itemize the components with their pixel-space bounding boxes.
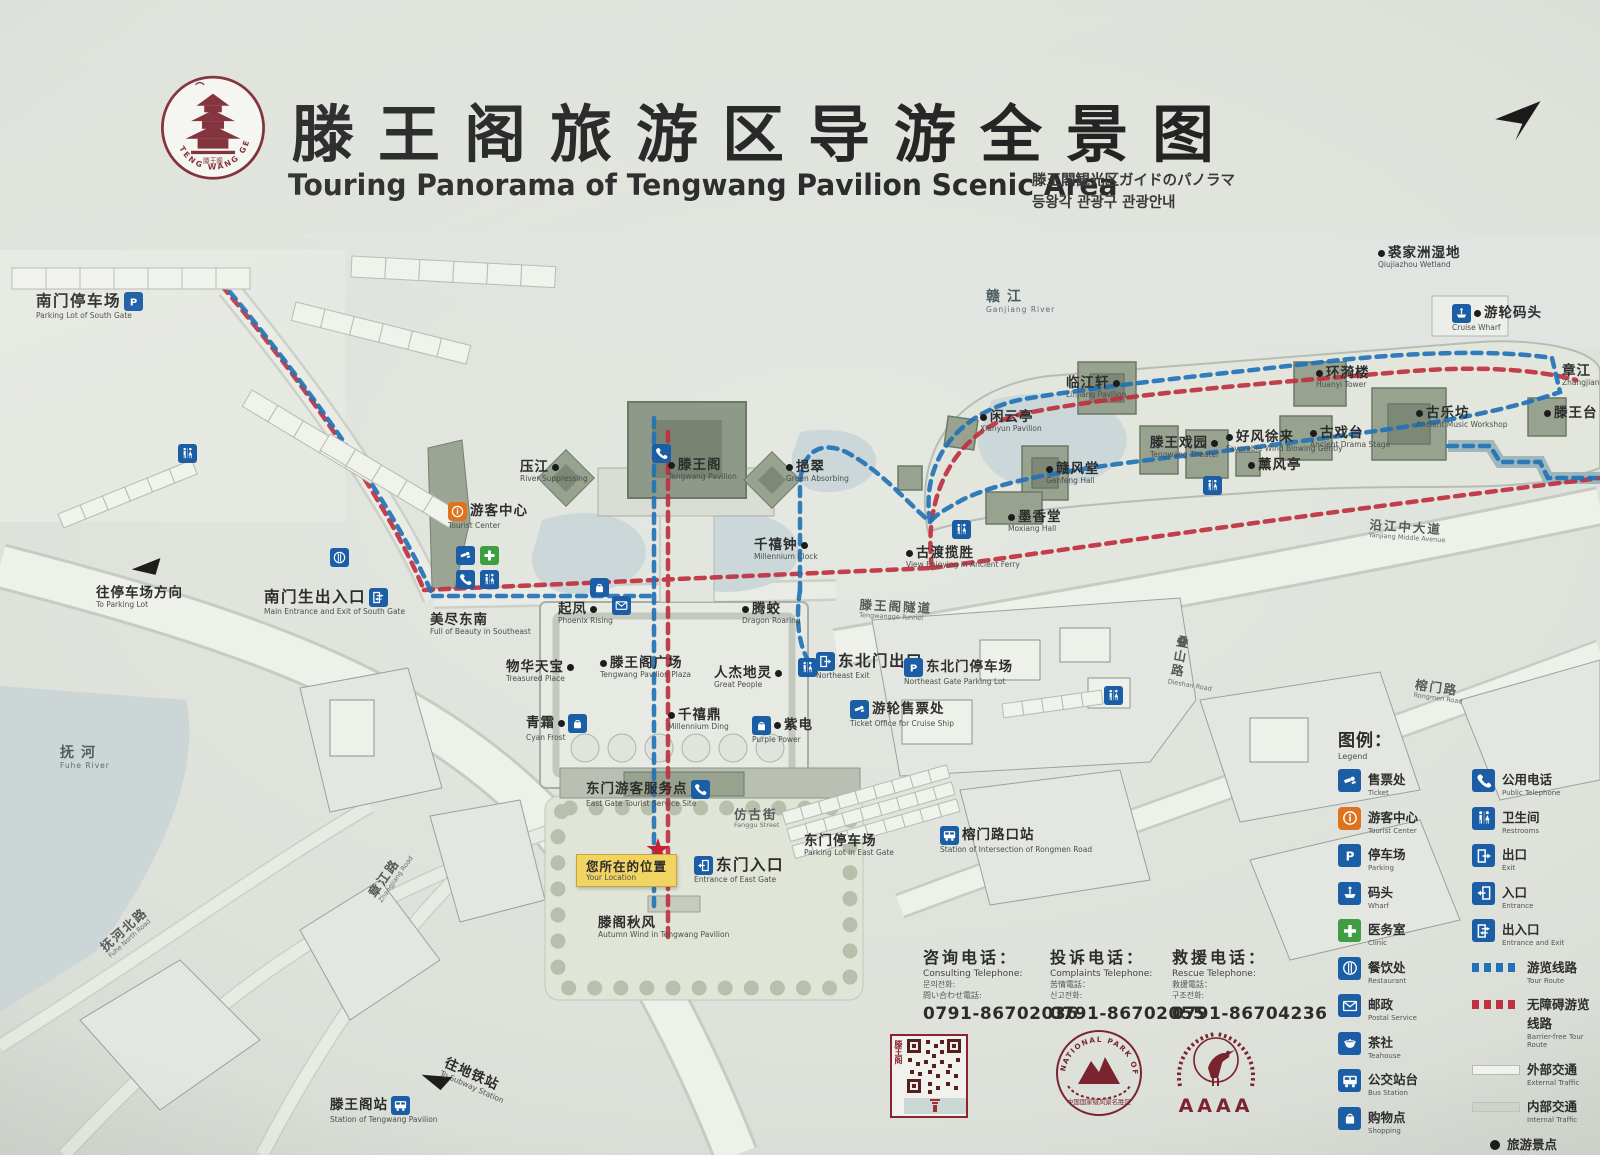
attraction-dot [1416,410,1423,417]
restroom-icon [178,444,197,463]
facility-restroom [178,444,197,465]
legend-item: 邮政Postal Service [1338,994,1462,1022]
ticket-icon [1338,769,1361,792]
poi-tengwang-theater: 滕王戏园Tengwang Theater [1150,436,1219,459]
wharf-icon [1338,882,1361,905]
poi-dieshan-road: 叠山路Dieshan Road [1167,634,1220,692]
poi-great-people: 人杰地灵Great People [714,666,782,689]
attraction-dot [590,606,597,613]
legend-item: 出口Exit [1472,844,1596,872]
facility-mail [612,596,631,617]
attraction-dot [906,550,913,557]
page-title-japanese: 滕王閣観光区ガイドのパノラマ [1032,170,1235,192]
legend-item: 游客中心Tourist Center [1338,807,1462,835]
legend-item: 医务室Clinic [1338,919,1462,947]
legend-item: 售票处Ticket [1338,769,1462,797]
attraction-dot [567,664,574,671]
poi-river-suppressing: 压江River Suppressing [520,460,588,483]
poi-ganfeng-hall: 赣风堂Ganfeng Hall [1046,462,1100,485]
legend-item: 茶社Teahouse [1338,1032,1462,1060]
qr-caption: 滕王阁 [892,1036,904,1116]
legend-item: 内部交通Internal Traffic [1472,1096,1596,1124]
shopping-icon [590,578,609,597]
restroom-icon [952,520,971,539]
legend-item: 停车场Parking [1338,844,1462,872]
direction-arrow-icon [131,558,163,578]
poi-tengwang-pavilion-plaza: 滕王阁广场Tengwang Pavilion Plaza [600,656,691,679]
inout-icon [1472,919,1495,942]
poi-green-absorbing: 挹翠Green Absorbing [786,460,849,483]
poi-millennium-ding: 千禧鼎Millennium Ding [668,708,729,731]
teahouse-icon [1338,1032,1361,1055]
wharf-icon [1452,304,1471,323]
attraction-dot [1008,514,1015,521]
poi-tengwang-terrace: 滕王台 [1544,406,1598,420]
legend-swatch-dotmark [1490,1140,1500,1150]
attraction-dot [980,414,987,421]
aaaa-rating-emblem: AAAA [1160,1024,1272,1124]
poi-zhangjiang: 章江Zhangjiang [1562,364,1600,387]
facility-phone [456,570,475,591]
poi-your-location: 您所在的位置Your Location [576,854,677,887]
attraction-dot [786,464,793,471]
attraction-dot [668,462,675,469]
restaurant-icon [1338,957,1361,980]
ticket-icon [850,700,869,719]
facility-restroom [480,570,499,591]
tengwang-scenic-area-map-board: P 滕王阁 TENG [0,0,1600,1155]
poi-rongmen-crossing-station: 榕门路口站Station of Intersection of Rongmen … [940,826,1092,854]
facility-arrow-sw [131,558,163,582]
attraction-dot [1113,380,1120,387]
poi-fanggu-street: 仿古街Fanggu Street [734,808,779,829]
attraction-dot [1226,434,1233,441]
bus-icon [1338,1069,1361,1092]
legend-item: 公交站台Bus Station [1338,1069,1462,1097]
restroom-icon [480,570,499,589]
entrance-icon [694,856,713,875]
poi-dragon-roaring: 腾蛟Dragon Roaring [742,602,801,625]
tengwangge-logo: 滕王阁 TENG WANG GE [158,72,268,190]
attraction-dot [558,720,565,727]
facility-restroom [1203,476,1222,497]
legend-item: 购物点Shopping [1338,1107,1462,1135]
attraction-dot [1046,466,1053,473]
legend-item: 码头Wharf [1338,882,1462,910]
poi-huanyi-tower: 环漪楼Huanyi Tower [1316,366,1370,389]
legend-item: 卫生间Restrooms [1472,807,1596,835]
facility-restroom [952,520,971,541]
attraction-dot [1378,250,1385,257]
phone-block: 救援电话：Rescue Telephone:救援電話：구조전화:0791-867… [1172,944,1328,1024]
fuhe-river-area [0,686,189,1012]
attraction-dot [1544,410,1551,417]
poi-tengwang-pavilion: 滕王阁Tengwang Pavilion [668,458,737,481]
restaurant-icon [330,548,349,567]
legend-right-column: 公用电话Public Telephone卫生间Restrooms出口Exit入口… [1472,769,1596,1155]
legend-swatch-dash-red [1472,1000,1520,1009]
poi-fuhe-river: 抚河Fuhe River [60,746,110,770]
attraction-dot [552,464,559,471]
inout-icon [369,588,388,607]
bus-icon [940,826,959,845]
poi-millennium-clock: 千禧钟Millennium Clock [754,538,818,561]
tengwang-plaza-shape [540,602,808,788]
attraction-dot [774,722,781,729]
phone-icon [1472,769,1495,792]
seal-ring-text: NATIONAL PARK OF CHINA [1054,1028,1140,1076]
page-title-translations: 滕王閣観光区ガイドのパノラマ 등왕각 관광구 관광안내 [1032,170,1235,215]
poi-full-of-beauty-southeast: 美尽东南Full of Beauty in Southeast [430,613,531,636]
medical-icon [1338,919,1361,942]
legend-item: 外部交通External Traffic [1472,1059,1596,1087]
restroom-icon [798,658,817,677]
phone-icon [691,780,710,799]
aaaa-text: AAAA [1179,1095,1254,1117]
page-title-english: Touring Panorama of Tengwang Pavilion Sc… [288,168,1118,202]
shopping-icon [1338,1107,1361,1130]
poi-cruise-wharf: 游轮码头Cruise Wharf [1452,304,1542,332]
attraction-dot [1211,440,1218,447]
legend: 图例： Legend 售票处Ticket游客中心Tourist Center停车… [1338,726,1596,1155]
attraction-dot [1316,370,1323,377]
medical-icon [480,546,499,565]
poi-autumn-wind: 滕阁秋风Autumn Wind in Tengwang Pavilion [598,916,729,939]
poi-to-parking-lot: 往停车场方向To Parking Lot [96,586,183,609]
facility-medical [480,546,499,567]
poi-linjiang-pavilion: 临江轩Linjiang Pavilion [1066,376,1127,399]
poi-qiujiazhou-wetland: 裘家洲湿地Qiujiazhou Wetland [1378,246,1461,269]
facility-shopping [590,578,609,599]
poi-tengwangge-tunnel: 滕王阁隧道Tengwangge Tunnel [859,598,933,623]
legend-title: 图例： Legend [1338,726,1596,761]
poi-phoenix-rising: 起凤Phoenix Rising [558,602,613,625]
exit-icon [816,652,835,671]
poi-xunfeng-pavilion: 薰风亭 [1248,458,1302,472]
legend-swatch-bar-light [1472,1065,1520,1075]
poi-moxiang-hall: 墨香堂Moxiang Hall [1008,510,1062,533]
attraction-dot [775,670,782,677]
qr-code: 滕王阁 [890,1034,968,1118]
legend-item: 入口Entrance [1472,882,1596,910]
poi-treasured-place: 物华天宝Treasured Place [506,660,574,683]
exit-icon [1472,844,1495,867]
seal-caption: 中国国家级风景名胜区 [1067,1097,1132,1106]
poi-ancient-ferry-view: 古渡揽胜View Enjoying in Ancient Ferry [906,546,1020,569]
poi-tourist-center: 游客中心Tourist Center [448,502,528,530]
facility-restroom [798,658,817,679]
legend-item: 公用电话Public Telephone [1472,769,1596,797]
poi-south-gate-main-entrance: 南门生出入口Main Entrance and Exit of South Ga… [264,588,405,616]
phone-icon [456,570,475,589]
poi-xianyun-pavilion: 闲云亭Xianyun Pavilion [980,410,1042,433]
page-title: 滕王阁旅游区导游全景图 [292,84,1238,174]
legend-swatch-dash-blue [1472,963,1520,972]
restroom-icon [1104,686,1123,705]
attraction-dot [1310,430,1317,437]
poi-tengwang-pavilion-station: 滕王阁站Station of Tengwang Pavilion [330,1096,438,1124]
attraction-dot [600,660,607,667]
compass-icon [1486,92,1548,150]
poi-cyan-frost: 青霜Cyan Frost [526,714,587,742]
poi-ancient-music-workshop: 古乐坊Ancient Music Workshop [1416,406,1508,429]
attraction-dot [801,542,808,549]
restroom-icon [1203,476,1222,495]
facility-ticket [456,546,475,567]
mail-icon [1338,994,1361,1017]
seal-mountain [1078,1057,1120,1084]
poi-ancient-drama-stage: 古戏台Ancient Drama Stage [1310,426,1390,449]
info-icon [448,502,467,521]
legend-item: 出入口Entrance and Exit [1472,919,1596,947]
info-icon [1338,807,1361,830]
parking-icon [124,292,143,311]
poi-east-gate-parking-lot: 东门停车场Parking Lot in East Gate [804,834,894,857]
entrance-icon [1472,882,1495,905]
qr-pattern [904,1036,966,1114]
parking-icon [904,658,923,677]
legend-item: 餐饮处Restaurant [1338,957,1462,985]
bus-icon [391,1096,410,1115]
legend-item: 游览线路Tour Route [1472,957,1596,985]
attraction-dot [1474,310,1481,317]
poi-purple-power: 紫电Purple Power [752,716,813,744]
legend-left-column: 售票处Ticket游客中心Tourist Center停车场Parking码头W… [1338,769,1462,1155]
facility-restaurant [330,548,349,569]
attraction-dot [668,712,675,719]
restroom-icon [1472,807,1495,830]
poi-east-gate-service-site: 东门游客服务点East Gate Tourist Service Site [586,780,710,808]
legend-item: 无障碍游览线路Barrier-free Tour Route [1472,994,1596,1049]
poi-ganjiang-river: 赣江Ganjiang River [986,290,1055,314]
legend-item: 旅游景点Tourist Attractions [1472,1134,1596,1155]
poi-east-gate-entrance: 东门入口Entrance of East Gate [694,856,784,884]
legend-swatch-bar-gray [1472,1102,1520,1112]
svg-text:NATIONAL PARK OF CHINA: NATIONAL PARK OF CHINA [1054,1028,1140,1076]
page-title-korean: 등왕각 관광구 관광안내 [1032,192,1235,214]
shopping-icon [568,714,587,733]
parking-icon [1338,844,1361,867]
facility-restroom [1104,686,1123,707]
attraction-dot [1248,462,1255,469]
poi-northeast-gate-parking-lot: 东北门停车场Northeast Gate Parking Lot [904,658,1013,686]
poi-cruise-ticket-office: 游轮售票处Ticket Office for Cruise Ship [850,700,954,728]
attraction-dot [742,606,749,613]
shopping-icon [752,716,771,735]
mail-icon [612,596,631,615]
poi-south-gate-parking-lot: 南门停车场Parking Lot of South Gate [36,292,143,320]
ticket-icon [456,546,475,565]
national-park-seal: NATIONAL PARK OF CHINA 中国国家级风景名胜区 [1054,1028,1144,1118]
